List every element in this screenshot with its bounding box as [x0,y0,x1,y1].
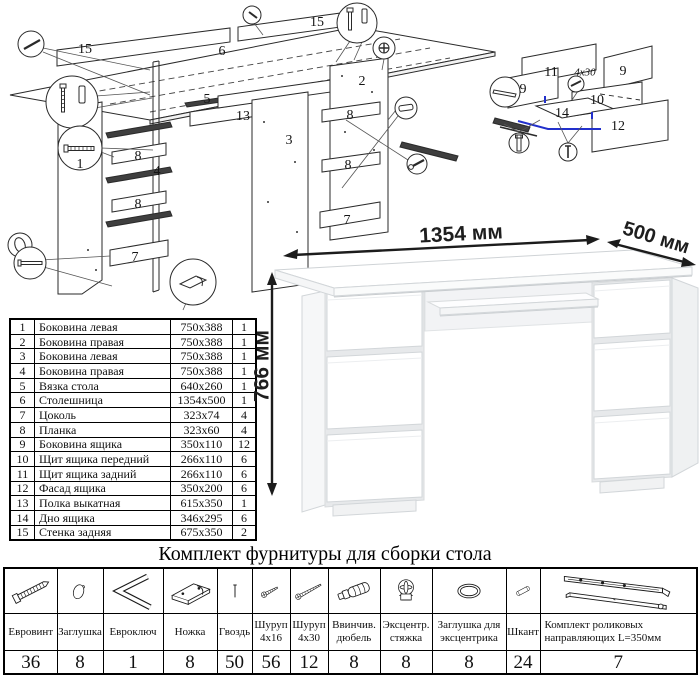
hardware-qty: 1 [103,651,163,675]
hardware-qty: 7 [540,651,697,675]
drawer-slide-bar [106,122,172,138]
drawer-slide-bar [106,167,172,183]
part-label: 9 [520,83,527,97]
part-label: 8 [135,198,142,212]
desk-product-render [0,212,700,542]
hardware-qty: 8 [163,651,217,675]
part-label: 14 [555,107,569,121]
width-dimension-label: 1354 мм [419,221,504,246]
part-label: 6 [219,45,226,59]
part-label: 9 [620,65,627,79]
hardware-name: Заглушка [57,614,103,651]
part-label: 4 [154,165,161,179]
screw-short-icon [252,568,290,614]
hardware-name: Шуруп 4x16 [252,614,290,651]
hardware-name: Заглушка для эксцентрика [432,614,506,651]
part-label: 10 [590,94,604,108]
drawer-front [594,339,670,411]
hardware-name: Комплект роликовых направляющих L=350мм [540,614,697,651]
screw-long-icon [290,568,328,614]
hardware-qty: 56 [252,651,290,675]
part-label: 15 [78,43,92,57]
cam-cap-icon [432,568,506,614]
hardware-qty: 24 [506,651,540,675]
part-label: 8 [347,109,354,123]
hardware-qty: 8 [380,651,432,675]
part-label: 3 [286,134,293,148]
hardware-name: Шкант [506,614,540,651]
wooden-dowel-icon [506,568,540,614]
height-dimension-label: 766 мм [252,330,273,402]
hardware-qty: 50 [217,651,252,675]
hardware-kit-table: Евровинт Заглушка Евроключ Ножка Гвоздь … [3,567,698,675]
hardware-name: Евровинт [4,614,57,651]
hardware-qty-row: 36 8 1 8 50 56 12 8 8 8 24 7 [4,651,697,675]
assembly-instruction-sheet: { "colors": { "accent_blue": "#2230cc", … [0,0,700,677]
foot-icon [163,568,217,614]
hardware-name: Эксцентр. стяжка [380,614,432,651]
cap-icon [57,568,103,614]
drawer-front [327,430,422,502]
hex-key-icon [103,568,163,614]
hardware-name: Ввинчив. дюбель [328,614,380,651]
part-label: 1 [77,158,84,172]
drawer-side-9 [604,46,652,90]
part-label: 8 [345,159,352,173]
hardware-kit-title: Комплект фурнитуры для сборки стола [0,543,650,566]
part-label: 2 [359,75,366,89]
hardware-qty: 8 [328,651,380,675]
part-label: 12 [611,120,625,134]
hardware-qty: 36 [4,651,57,675]
nail-icon [217,568,252,614]
part-label: 11 [544,66,557,80]
hardware-icons-row [4,568,697,614]
dowel-screw-icon [328,568,380,614]
hardware-name: Евроключ [103,614,163,651]
part-label: 8 [135,150,142,164]
hardware-qty: 8 [432,651,506,675]
hardware-names-row: Евровинт Заглушка Евроключ Ножка Гвоздь … [4,614,697,651]
screw-size-note: 4x30 [574,68,595,79]
drawer-slides-icon [540,568,697,614]
desk-body [275,250,698,516]
drawer-exploded-diagram [490,44,668,161]
drawer-front [327,352,422,429]
part-label: 13 [236,110,250,124]
drawer-front [327,289,422,351]
hardware-qty: 12 [290,651,328,675]
cam-lock-icon [380,568,432,614]
hardware-qty: 8 [57,651,103,675]
hardware-name: Гвоздь [217,614,252,651]
confirmat-screw-icon [4,568,57,614]
part-label: 5 [204,93,211,107]
hardware-name: Шуруп 4x30 [290,614,328,651]
part-label: 15 [310,16,324,30]
hardware-name: Ножка [163,614,217,651]
